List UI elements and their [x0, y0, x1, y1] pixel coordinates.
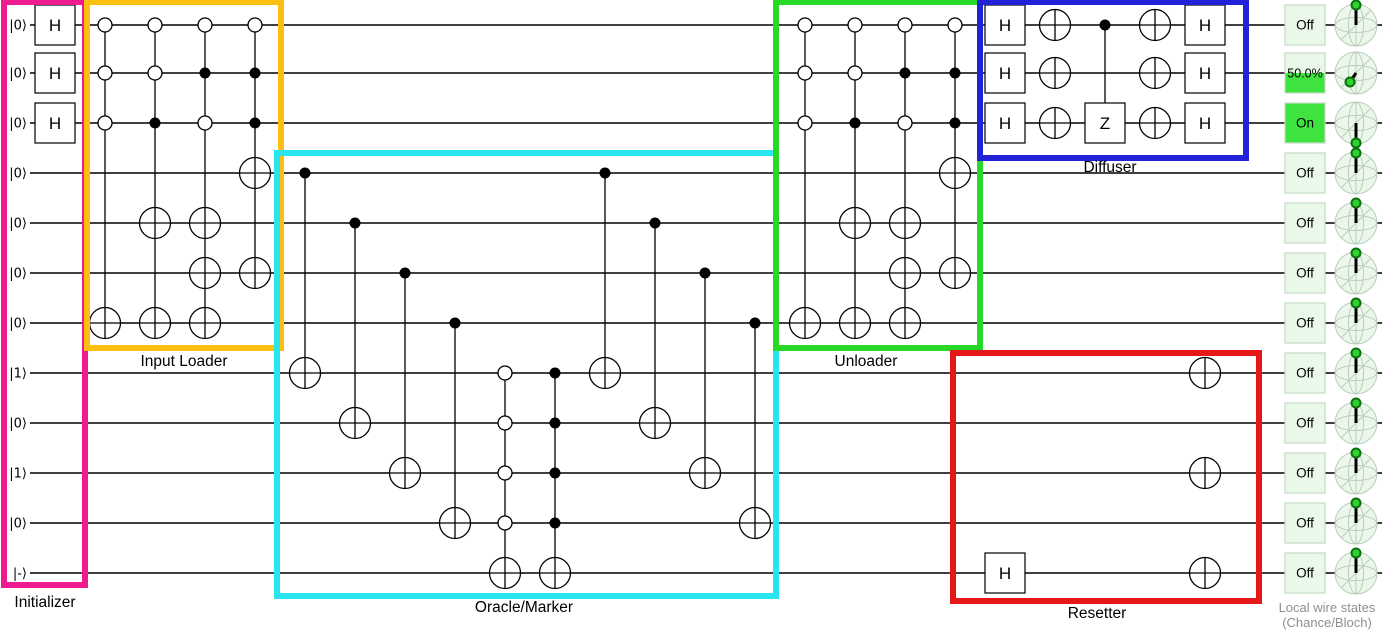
- control-dot[interactable]: [250, 68, 261, 79]
- bloch-state-dot-0: [1352, 1, 1361, 10]
- anti-control-dot[interactable]: [798, 116, 812, 130]
- control-dot[interactable]: [350, 218, 361, 229]
- control-dot[interactable]: [300, 168, 311, 179]
- cnot-target-icon[interactable]: [790, 308, 821, 339]
- anti-control-dot[interactable]: [98, 116, 112, 130]
- chance-display-2: On: [1285, 103, 1325, 143]
- control-dot[interactable]: [450, 318, 461, 329]
- gate-h[interactable]: H: [985, 5, 1025, 45]
- cnot-target-icon[interactable]: [1040, 10, 1071, 41]
- anti-control-dot[interactable]: [848, 66, 862, 80]
- cnot-target-icon[interactable]: [1190, 358, 1221, 389]
- gate-column-3: [190, 18, 221, 339]
- anti-control-dot[interactable]: [498, 466, 512, 480]
- control-dot[interactable]: [550, 468, 561, 479]
- anti-control-dot[interactable]: [198, 18, 212, 32]
- bloch-state-dot-8: [1352, 399, 1361, 408]
- gate-column-2: [140, 18, 171, 339]
- wire-ket-label-4: |0⟩: [9, 217, 27, 232]
- bloch-sphere-display-0: [1335, 1, 1377, 47]
- anti-control-dot[interactable]: [498, 366, 512, 380]
- svg-text:H: H: [999, 16, 1011, 35]
- gate-column-18: [940, 18, 971, 289]
- gate-column-8: [440, 318, 471, 539]
- gate-column-6: [340, 218, 371, 439]
- control-dot[interactable]: [850, 118, 861, 129]
- gate-column-1: [90, 18, 121, 339]
- gate-h[interactable]: H: [1185, 5, 1225, 45]
- gate-column-16: [840, 18, 871, 339]
- control-dot[interactable]: [1100, 20, 1111, 31]
- gate-column-4: [240, 18, 271, 289]
- control-dot[interactable]: [750, 318, 761, 329]
- cnot-target-icon[interactable]: [240, 258, 271, 289]
- wire-ket-label-10: |0⟩: [9, 517, 27, 532]
- section-label-resetter: Resetter: [1068, 605, 1127, 622]
- svg-text:Off: Off: [1296, 316, 1314, 331]
- svg-text:Off: Off: [1296, 516, 1314, 531]
- bloch-sphere-display-10: [1335, 499, 1377, 545]
- local-wire-states-caption: Local wire states (Chance/Bloch): [1262, 600, 1382, 630]
- svg-text:Off: Off: [1296, 216, 1314, 231]
- cnot-target-icon[interactable]: [1140, 108, 1171, 139]
- svg-text:H: H: [999, 114, 1011, 133]
- cnot-target-icon[interactable]: [890, 208, 921, 239]
- chance-display-7: Off: [1285, 353, 1325, 393]
- bloch-state-dot-7: [1352, 349, 1361, 358]
- control-dot[interactable]: [950, 118, 961, 129]
- bloch-sphere-display-8: [1335, 399, 1377, 445]
- bloch-sphere-display-1: [1335, 52, 1377, 94]
- svg-text:H: H: [999, 64, 1011, 83]
- svg-text:On: On: [1296, 116, 1314, 131]
- gate-column-17: [890, 18, 921, 339]
- svg-text:Off: Off: [1296, 416, 1314, 431]
- wire-ket-label-9: |1⟩: [9, 467, 27, 482]
- gate-h[interactable]: H: [985, 103, 1025, 143]
- cnot-target-icon[interactable]: [90, 308, 121, 339]
- cnot-target-icon[interactable]: [190, 208, 221, 239]
- gate-h[interactable]: H: [985, 53, 1025, 93]
- svg-text:H: H: [999, 564, 1011, 583]
- cnot-target-icon[interactable]: [840, 308, 871, 339]
- chance-display-10: Off: [1285, 503, 1325, 543]
- gate-h[interactable]: H: [985, 553, 1025, 593]
- svg-text:H: H: [1199, 16, 1211, 35]
- anti-control-dot[interactable]: [148, 66, 162, 80]
- svg-text:H: H: [1199, 64, 1211, 83]
- cnot-target-icon[interactable]: [540, 558, 571, 589]
- control-dot[interactable]: [200, 68, 211, 79]
- anti-control-dot[interactable]: [148, 18, 162, 32]
- svg-text:Off: Off: [1296, 18, 1314, 33]
- caption-line-2: (Chance/Bloch): [1262, 615, 1382, 630]
- bloch-state-dot-9: [1352, 449, 1361, 458]
- chance-display-6: Off: [1285, 303, 1325, 343]
- cnot-target-icon[interactable]: [840, 208, 871, 239]
- quirk-circuit-page: |0⟩|0⟩|0⟩|0⟩|0⟩|0⟩|0⟩|1⟩|0⟩|1⟩|0⟩|-⟩HHHH…: [0, 0, 1382, 633]
- gate-column-20: [1040, 10, 1071, 139]
- anti-control-dot[interactable]: [98, 66, 112, 80]
- bloch-state-dot-2: [1352, 139, 1361, 148]
- svg-text:Off: Off: [1296, 566, 1314, 581]
- cnot-target-icon[interactable]: [140, 208, 171, 239]
- gate-h[interactable]: H: [35, 53, 75, 93]
- cnot-target-icon[interactable]: [640, 408, 671, 439]
- anti-control-dot[interactable]: [98, 18, 112, 32]
- gate-column-25: [1190, 358, 1221, 589]
- wire-ket-label-0: |0⟩: [9, 19, 27, 34]
- cnot-target-icon[interactable]: [940, 258, 971, 289]
- bloch-sphere-display-11: [1335, 549, 1377, 595]
- gate-column-0: HHH: [35, 5, 75, 143]
- svg-text:H: H: [49, 16, 61, 35]
- wire-ket-label-2: |0⟩: [9, 117, 27, 132]
- gate-column-14: [740, 318, 771, 539]
- bloch-sphere-display-2: [1335, 102, 1377, 148]
- anti-control-dot[interactable]: [898, 116, 912, 130]
- control-dot[interactable]: [700, 268, 711, 279]
- bloch-state-dot-5: [1352, 249, 1361, 258]
- chance-display-0: Off: [1285, 5, 1325, 45]
- gate-column-19: HHH: [985, 5, 1025, 143]
- cnot-target-icon[interactable]: [1190, 458, 1221, 489]
- cnot-target-icon[interactable]: [890, 308, 921, 339]
- svg-text:Z: Z: [1100, 114, 1110, 133]
- bloch-sphere-display-5: [1335, 249, 1377, 295]
- wire-ket-label-1: |0⟩: [9, 67, 27, 82]
- chance-display-11: Off: [1285, 553, 1325, 593]
- gate-column-21: Z: [1085, 20, 1125, 144]
- control-dot[interactable]: [950, 68, 961, 79]
- bloch-state-dot-6: [1352, 299, 1361, 308]
- anti-control-dot[interactable]: [248, 18, 262, 32]
- svg-text:H: H: [1199, 114, 1211, 133]
- bloch-sphere-display-7: [1335, 349, 1377, 395]
- gate-column-23: HHH: [1185, 5, 1225, 143]
- svg-text:Off: Off: [1296, 166, 1314, 181]
- bloch-sphere-display-4: [1335, 199, 1377, 245]
- svg-text:Off: Off: [1296, 466, 1314, 481]
- svg-text:H: H: [49, 114, 61, 133]
- gate-column-12: [640, 218, 671, 439]
- gate-column-11: [590, 168, 621, 389]
- bloch-state-dot-4: [1352, 199, 1361, 208]
- svg-text:Off: Off: [1296, 266, 1314, 281]
- circuit-canvas: |0⟩|0⟩|0⟩|0⟩|0⟩|0⟩|0⟩|1⟩|0⟩|1⟩|0⟩|-⟩HHHH…: [0, 0, 1382, 633]
- bloch-state-dot-3: [1352, 149, 1361, 158]
- anti-control-dot[interactable]: [898, 18, 912, 32]
- anti-control-dot[interactable]: [498, 516, 512, 530]
- section-label-diffuser: Diffuser: [1083, 159, 1136, 176]
- control-dot[interactable]: [550, 368, 561, 379]
- cnot-target-icon[interactable]: [1040, 58, 1071, 89]
- anti-control-dot[interactable]: [798, 66, 812, 80]
- cnot-target-icon[interactable]: [590, 358, 621, 389]
- caption-line-1: Local wire states: [1262, 600, 1382, 615]
- cnot-target-icon[interactable]: [390, 458, 421, 489]
- gate-column-22: [1140, 10, 1171, 139]
- gate-column-15: [790, 18, 821, 339]
- control-dot[interactable]: [900, 68, 911, 79]
- bloch-sphere-display-9: [1335, 449, 1377, 495]
- wire-ket-label-6: |0⟩: [9, 317, 27, 332]
- chance-display-4: Off: [1285, 203, 1325, 243]
- bloch-sphere-display-3: [1335, 149, 1377, 195]
- bloch-state-dot-11: [1352, 549, 1361, 558]
- anti-control-dot[interactable]: [498, 416, 512, 430]
- cnot-target-icon[interactable]: [190, 308, 221, 339]
- cnot-target-icon[interactable]: [890, 258, 921, 289]
- chance-display-5: Off: [1285, 253, 1325, 293]
- cnot-target-icon[interactable]: [1140, 58, 1171, 89]
- gate-column-9: [490, 366, 521, 589]
- gate-column-5: [290, 168, 321, 389]
- cnot-target-icon[interactable]: [1140, 10, 1171, 41]
- svg-text:H: H: [49, 64, 61, 83]
- section-label-input-loader: Input Loader: [140, 353, 227, 370]
- control-dot[interactable]: [400, 268, 411, 279]
- chance-display-3: Off: [1285, 153, 1325, 193]
- svg-text:50.0%: 50.0%: [1287, 67, 1322, 81]
- cnot-target-icon[interactable]: [690, 458, 721, 489]
- cnot-target-icon[interactable]: [490, 558, 521, 589]
- cnot-target-icon[interactable]: [740, 508, 771, 539]
- anti-control-dot[interactable]: [798, 18, 812, 32]
- anti-control-dot[interactable]: [198, 116, 212, 130]
- cnot-target-icon[interactable]: [1190, 558, 1221, 589]
- gate-h[interactable]: H: [1185, 53, 1225, 93]
- wire-ket-label-11: |-⟩: [13, 567, 27, 582]
- cnot-target-icon[interactable]: [340, 408, 371, 439]
- chance-display-9: Off: [1285, 453, 1325, 493]
- cnot-target-icon[interactable]: [240, 158, 271, 189]
- section-label-oracle-marker: Oracle/Marker: [475, 599, 573, 616]
- gate-column-24: H: [985, 553, 1025, 593]
- wire-ket-label-3: |0⟩: [9, 167, 27, 182]
- control-dot[interactable]: [650, 218, 661, 229]
- section-label-initializer: Initializer: [14, 594, 75, 611]
- cnot-target-icon[interactable]: [140, 308, 171, 339]
- anti-control-dot[interactable]: [848, 18, 862, 32]
- svg-text:Off: Off: [1296, 366, 1314, 381]
- wire-ket-label-5: |0⟩: [9, 267, 27, 282]
- cnot-target-icon[interactable]: [290, 358, 321, 389]
- anti-control-dot[interactable]: [948, 18, 962, 32]
- gate-z[interactable]: Z: [1085, 103, 1125, 143]
- cnot-target-icon[interactable]: [1040, 108, 1071, 139]
- chance-display-1: 50.0%: [1285, 53, 1325, 93]
- control-dot[interactable]: [250, 118, 261, 129]
- gate-column-13: [690, 268, 721, 489]
- wire-ket-label-8: |0⟩: [9, 417, 27, 432]
- wire-ket-label-7: |1⟩: [9, 367, 27, 382]
- gate-h[interactable]: H: [35, 5, 75, 45]
- cnot-target-icon[interactable]: [190, 258, 221, 289]
- section-label-unloader: Unloader: [835, 353, 898, 370]
- gate-h[interactable]: H: [1185, 103, 1225, 143]
- bloch-state-dot-10: [1352, 499, 1361, 508]
- control-dot[interactable]: [550, 518, 561, 529]
- bloch-state-dot-1: [1346, 78, 1355, 87]
- control-dot[interactable]: [150, 118, 161, 129]
- bloch-sphere-display-6: [1335, 299, 1377, 345]
- chance-display-8: Off: [1285, 403, 1325, 443]
- control-dot[interactable]: [550, 418, 561, 429]
- cnot-target-icon[interactable]: [940, 158, 971, 189]
- gate-column-10: [540, 368, 571, 589]
- gate-h[interactable]: H: [35, 103, 75, 143]
- control-dot[interactable]: [600, 168, 611, 179]
- gate-column-7: [390, 268, 421, 489]
- cnot-target-icon[interactable]: [440, 508, 471, 539]
